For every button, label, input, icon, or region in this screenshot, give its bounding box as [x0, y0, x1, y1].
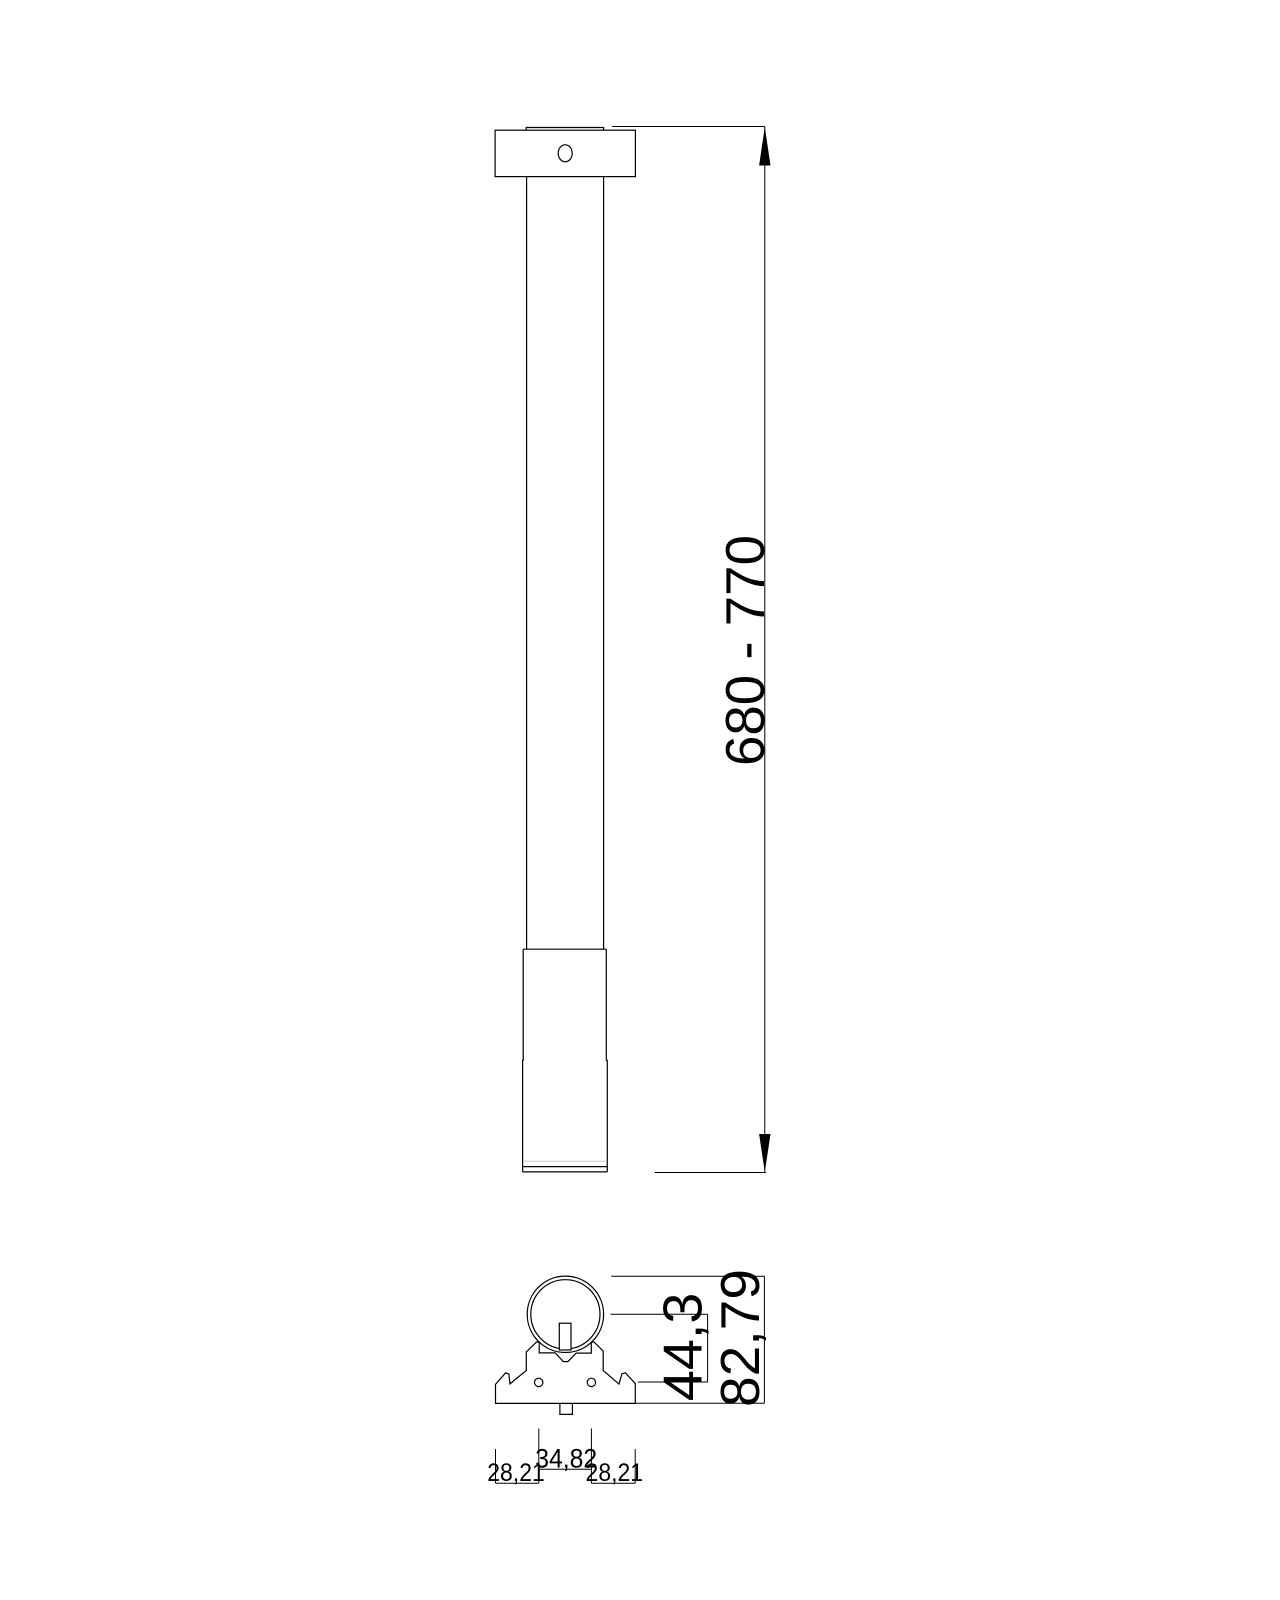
svg-text:44,3: 44,3 [652, 1293, 714, 1402]
svg-text:680 - 770: 680 - 770 [714, 535, 776, 766]
svg-text:28,21: 28,21 [487, 1459, 545, 1487]
svg-text:82,79: 82,79 [709, 1269, 771, 1407]
svg-text:28,21: 28,21 [586, 1459, 644, 1487]
